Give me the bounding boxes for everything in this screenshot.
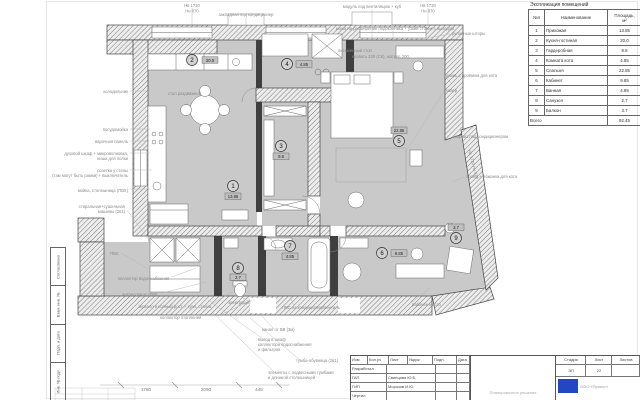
svg-text:Нн 870: Нн 870 bbox=[421, 9, 435, 14]
svg-text:1780: 1780 bbox=[141, 387, 152, 392]
svg-text:4.85: 4.85 bbox=[300, 62, 309, 67]
svg-text:стол раздвижной: стол раздвижной bbox=[168, 91, 202, 96]
svg-text:ПВС на кондиционер/вентиль: ПВС на кондиционер/вентиль bbox=[282, 305, 341, 310]
svg-text:22.85: 22.85 bbox=[394, 128, 405, 133]
frame-box-vzam: Взам. инв. № bbox=[51, 286, 65, 324]
company-logo bbox=[558, 379, 578, 393]
explication-row: 5Спальня22.85 bbox=[529, 66, 640, 76]
svg-text:20.0: 20.0 bbox=[206, 58, 215, 63]
stage-value: ЭП bbox=[556, 365, 586, 376]
svg-text:антресоли Н 2080: антресоли Н 2080 bbox=[122, 292, 158, 297]
svg-text:Нв 1720: Нв 1720 bbox=[420, 3, 436, 8]
row-gap: ГАП Свинцова Ю.Б. bbox=[351, 374, 470, 383]
explication-row: 9Балкон3.7 bbox=[529, 106, 640, 116]
svg-text:рулонные шторы: рулонные шторы bbox=[452, 31, 485, 36]
explication-total: Всего 92.45 bbox=[529, 116, 640, 126]
explication-row: 8Санузел2.7 bbox=[529, 96, 640, 106]
explication-row: 7Ванная4.85 bbox=[529, 86, 640, 96]
explication-row: 6Кабинет9.85 bbox=[529, 76, 640, 86]
svg-text:2090: 2090 bbox=[201, 387, 212, 392]
svg-text:ковёр: ковёр bbox=[446, 88, 458, 93]
explication-header: №п Наименование Площадь, м² bbox=[529, 10, 640, 26]
svg-text:модуль под вентиляцию + куб: модуль под вентиляцию + куб bbox=[343, 4, 402, 9]
sheets-label: Листов bbox=[612, 356, 640, 364]
doc-note: Планировочное решение bbox=[471, 390, 555, 395]
svg-text:9.8: 9.8 bbox=[278, 154, 284, 159]
svg-text:ПВС: ПВС bbox=[110, 251, 119, 256]
svg-text:карниз под кондиционером: карниз под кондиционером bbox=[455, 134, 508, 139]
svg-text:рабочее место: рабочее место bbox=[412, 302, 441, 307]
row-draftsman: Чертил bbox=[351, 392, 470, 400]
svg-text:ниша для полки: ниша для полки bbox=[97, 156, 129, 161]
svg-text:посудомойка: посудомойка bbox=[103, 127, 129, 132]
frame-strip: Согласовано Взам. инв. № Подп. и дата Ин… bbox=[50, 247, 66, 400]
svg-text:дверь с проёмом для кота: дверь с проёмом для кота bbox=[446, 73, 498, 78]
svg-text:4.85: 4.85 bbox=[286, 254, 295, 259]
svg-text:холодильник: холодильник bbox=[103, 89, 128, 94]
explication-row: 2Кухня-гостиная20.0 bbox=[529, 36, 640, 46]
svg-text:закладная под кондиционер: закладная под кондиционер bbox=[219, 12, 275, 17]
frame-box-podp: Подп. и дата bbox=[51, 325, 65, 363]
svg-text:тумба-обувница (2в1): тумба-обувница (2в1) bbox=[296, 358, 339, 363]
title-block-stage: Стадия Лист Листов ЭП 22 ООО «Проект» bbox=[556, 356, 640, 400]
svg-text:кровать 220 (СК), матрас 200: кровать 220 (СК), матрас 200 bbox=[352, 54, 410, 59]
dimension-row: 1780 2090 445 bbox=[55, 382, 290, 400]
svg-text:зеркало в полный рост + туал.: зеркало в полный рост + туал. столик bbox=[138, 304, 211, 309]
revision-header: Изм Кол.уч Лист №док Подп. Дата bbox=[351, 356, 470, 365]
col-name: Наименование bbox=[545, 10, 608, 26]
title-block: Изм Кол.уч Лист №док Подп. Дата Разработ… bbox=[350, 355, 640, 400]
company-name: ООО «Проект» bbox=[580, 384, 608, 389]
svg-text:мойка, столешница (ПВХ): мойка, столешница (ПВХ) bbox=[78, 188, 129, 193]
explication-title: Экспликация помещений bbox=[530, 2, 638, 8]
title-block-docname: Планировочное решение bbox=[471, 356, 556, 400]
title-block-revisions: Изм Кол.уч Лист №док Подп. Дата Разработ… bbox=[351, 356, 471, 400]
svg-text:письменный стол: письменный стол bbox=[338, 48, 372, 53]
svg-text:варочная панель: варочная панель bbox=[95, 139, 129, 144]
explication-row: 1Прихожая13.85 bbox=[529, 26, 640, 36]
svg-text:машины (2в1): машины (2в1) bbox=[98, 209, 126, 214]
svg-text:Нн 870: Нн 870 bbox=[185, 9, 199, 14]
svg-text:и фильтров: и фильтров bbox=[258, 347, 281, 352]
svg-text:ниша на расширение подоконника: ниша на расширение подоконника + узкий с… bbox=[336, 26, 454, 31]
stage-label: Стадия bbox=[556, 356, 586, 364]
drawing-sheet: 1 13.85 2 20.0 3 9.8 4 4.85 5 22.85 6 9.… bbox=[0, 0, 640, 400]
svg-text:электрощит: электрощит bbox=[228, 300, 251, 305]
svg-text:канал от ВВ (3м): канал от ВВ (3м) bbox=[262, 327, 295, 332]
svg-text:3.7: 3.7 bbox=[453, 225, 459, 230]
row-gip: ГИП Морозов И.Ю. bbox=[351, 383, 470, 392]
svg-text:коллектор водоснабжения: коллектор водоснабжения bbox=[118, 276, 169, 281]
explication-row: 4Комната кота4.85 bbox=[529, 56, 640, 66]
svg-text:13.85: 13.85 bbox=[228, 194, 239, 199]
total-label: Всего bbox=[529, 116, 608, 126]
sheet-value: 22 bbox=[586, 365, 612, 376]
svg-text:и длинной столешницей: и длинной столешницей bbox=[268, 375, 316, 380]
svg-text:коллектор отопления: коллектор отопления bbox=[160, 315, 201, 320]
explication-table: Экспликация помещений №п Наименование Пл… bbox=[528, 2, 638, 126]
frame-box-inv: Инв. № подл. bbox=[51, 363, 65, 400]
svg-text:(там могут быть рамки) + выклю: (там могут быть рамки) + выключатель bbox=[52, 173, 129, 178]
svg-text:2.7: 2.7 bbox=[235, 275, 241, 280]
total-value: 92.45 bbox=[608, 116, 640, 126]
explication-row: 3Гардеробная9.8 bbox=[529, 46, 640, 56]
col-num: №п bbox=[529, 10, 545, 26]
frame-box-approved: Согласовано bbox=[51, 248, 65, 286]
svg-text:9.85: 9.85 bbox=[395, 251, 404, 256]
sheet-label: Лист bbox=[586, 356, 612, 364]
row-developer: Разработал bbox=[351, 365, 470, 374]
col-area: Площадь, м² bbox=[608, 10, 640, 26]
svg-text:445: 445 bbox=[255, 387, 263, 392]
svg-text:Нв 1720: Нв 1720 bbox=[184, 3, 200, 8]
